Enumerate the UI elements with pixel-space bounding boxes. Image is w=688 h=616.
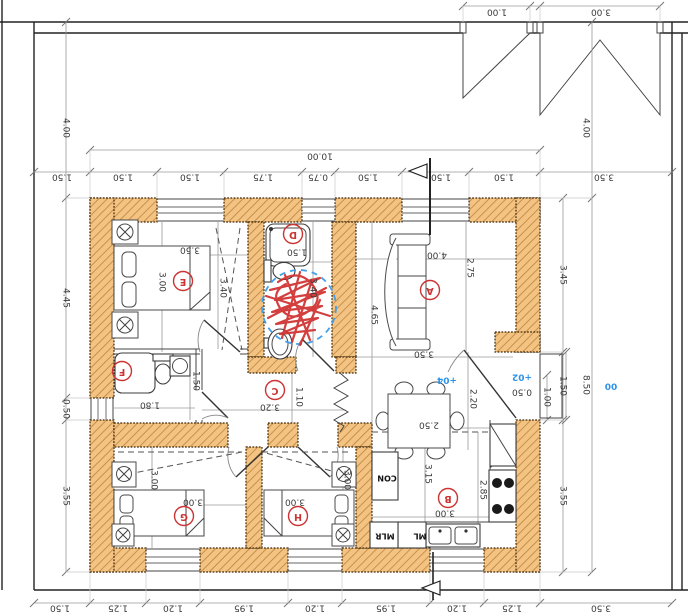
dim-bottom-4: 1.20: [305, 603, 325, 613]
svg-text:F: F: [119, 366, 126, 377]
dim-top-5: 1.50: [358, 172, 378, 182]
dim-bottom-7: 1.25: [502, 603, 522, 613]
room-label-b: B: [439, 489, 458, 508]
dim-left-1: 4.45: [61, 288, 71, 308]
dim-total-width: 10.00: [307, 151, 333, 161]
dim-gate-small: 1.00: [487, 7, 507, 17]
window-top-2: [302, 199, 335, 221]
dim-bottom-2: 1.20: [163, 603, 183, 613]
dim-room-h-depth: 3.00: [342, 470, 352, 490]
window-bottom-3: [430, 549, 484, 571]
svg-text:A: A: [426, 285, 434, 296]
wc-sink-icon: [170, 356, 190, 376]
dim-corridor-depth: 1.10: [294, 387, 304, 407]
dim-room-a-width: 4.00: [427, 250, 447, 260]
dim-right-3: 3.55: [558, 486, 568, 506]
elevation-site: 00: [605, 381, 618, 391]
stove-icon: [489, 470, 516, 522]
dim-room-g-width: 3.00: [183, 497, 203, 507]
dim-bottom-5: 1.95: [376, 603, 396, 613]
kitchen-sink-icon: [426, 524, 480, 547]
dim-dining-table: 2.50: [419, 420, 439, 430]
dim-top-offset-left: 1.50: [52, 172, 72, 182]
dim-room-d-width: 1.50: [287, 247, 307, 257]
svg-text:C: C: [271, 385, 278, 396]
svg-text:H: H: [294, 511, 302, 522]
elevation-interior: +04: [437, 375, 457, 385]
dim-kitchen-width: 3.00: [435, 508, 455, 518]
dim-bottom-1: 1.25: [108, 603, 128, 613]
section-marker-top: [409, 158, 430, 235]
dim-bottom-6: 1.20: [447, 603, 467, 613]
svg-text:B: B: [444, 493, 451, 504]
dim-room-e-depth: 3.00: [157, 272, 167, 292]
dim-room-g-depth: 3.00: [149, 470, 159, 490]
room-label-c: C: [266, 381, 285, 400]
dim-right-2: 1.50: [558, 376, 568, 396]
dim-room-a-right: 2.75: [465, 258, 475, 278]
dim-bottom-offset-right: 3.50: [591, 603, 611, 613]
dim-wc-width: 1.80: [140, 400, 160, 410]
floor-plan-drawing: ABCDEFGH 1.003.0010.001.501.501.501.750.…: [0, 0, 688, 616]
dim-hall-door: 2.20: [468, 389, 478, 409]
dim-left-setback: 4.00: [61, 118, 71, 138]
section-triangle-icon: [409, 164, 427, 178]
dim-left-3: 3.55: [61, 486, 71, 506]
dim-top-1: 1.50: [113, 172, 133, 182]
dim-room-a-lower: 3.50: [414, 349, 434, 359]
dim-top-offset-right: 3.50: [594, 172, 614, 182]
window-bottom-1: [146, 549, 200, 571]
dim-bottom-offset-left: 1.50: [50, 603, 70, 613]
appliance-label-con: CON: [377, 474, 396, 483]
dim-closet-strip: 3.40: [218, 278, 228, 298]
section-triangle-icon: [422, 581, 440, 595]
wc-f-fixtures: [115, 353, 190, 393]
dim-top-2: 1.50: [180, 172, 200, 182]
dim-entry-door: 1.00: [542, 387, 552, 407]
door-wc-f: [202, 392, 228, 419]
dim-room-h-width: 3.00: [285, 497, 305, 507]
dim-right-total: 8.50: [581, 375, 591, 395]
dim-top-7: 1.50: [494, 172, 514, 182]
svg-text:D: D: [289, 229, 297, 240]
dim-wc-depth: 1.50: [191, 371, 201, 391]
sofa: [385, 234, 430, 350]
dim-room-d-depth: 3.40: [308, 278, 318, 298]
dim-corridor-width: 3.20: [260, 402, 280, 412]
dim-right-setback: 4.00: [581, 118, 591, 138]
dim-top-3: 1.75: [253, 172, 273, 182]
appliance-label-ml: ML: [413, 532, 426, 541]
dim-top-4: 0.75: [308, 172, 328, 182]
dim-gate-large: 3.00: [591, 7, 611, 17]
elevation-entry-step: +02: [512, 372, 532, 382]
floor-plan-canvas: ABCDEFGH 1.003.0010.001.501.501.501.750.…: [0, 0, 688, 616]
svg-text:E: E: [180, 276, 187, 287]
appliance-label-mlr: MLR: [375, 532, 394, 541]
svg-text:G: G: [180, 511, 188, 522]
dim-room-a-left: 4.65: [369, 305, 379, 325]
window-left-wc: [91, 398, 113, 420]
dim-entry-step: 0.50: [512, 387, 532, 397]
pedestrian-gate-symbol: [460, 22, 533, 98]
dim-bottom-3: 1.95: [234, 603, 254, 613]
window-top-1: [157, 199, 224, 221]
dim-left-2: 0.50: [61, 399, 71, 419]
dim-kitchen-depth: 3.15: [423, 464, 433, 484]
door-room-e: [198, 320, 240, 352]
dim-room-e-width: 3.50: [180, 245, 200, 255]
dim-top-6: 1.50: [431, 172, 451, 182]
window-bottom-2: [288, 549, 342, 571]
dim-kitchen-right: 2.85: [478, 480, 488, 500]
window-top-3: [402, 199, 469, 221]
dim-right-1: 3.45: [558, 265, 568, 285]
driveway-gate-symbol: [537, 22, 663, 115]
